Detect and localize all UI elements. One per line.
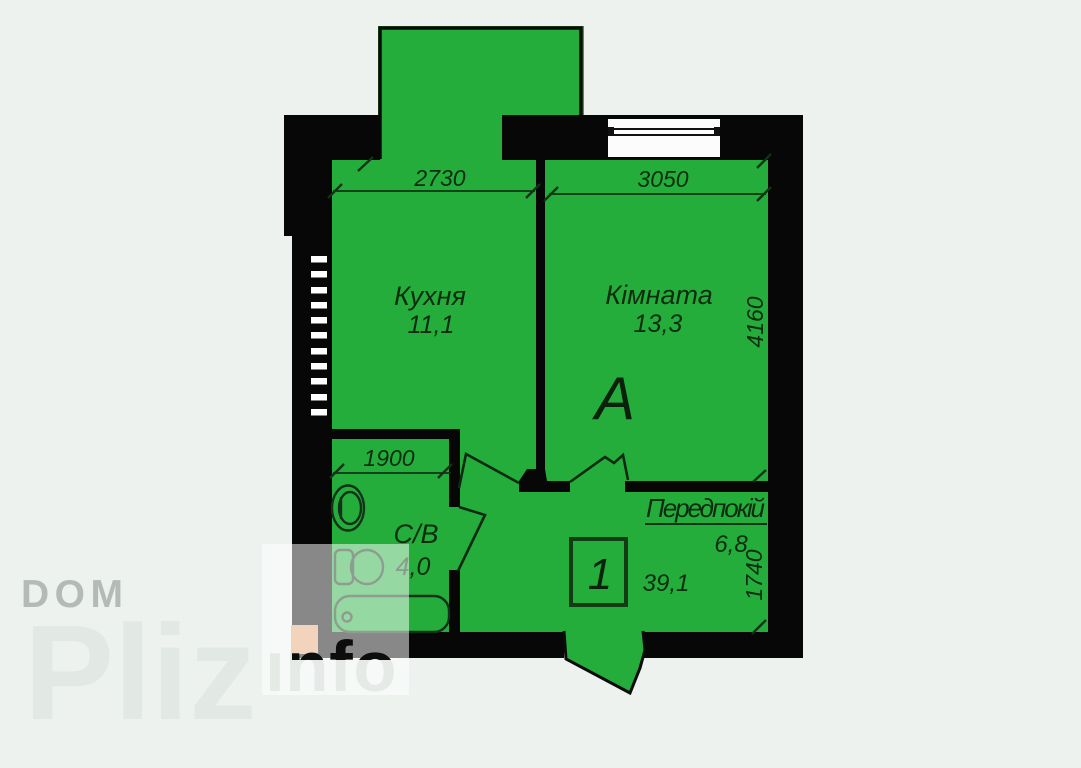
svg-text:39,1: 39,1 — [643, 570, 690, 597]
svg-text:Pliz: Pliz — [24, 597, 257, 748]
svg-text:DOM: DOM — [21, 573, 129, 616]
svg-text:3050: 3050 — [637, 166, 688, 192]
svg-text:2730: 2730 — [413, 165, 465, 191]
svg-text:А: А — [592, 365, 635, 432]
svg-text:Кімната: Кімната — [605, 280, 713, 310]
svg-text:6,8: 6,8 — [714, 531, 748, 558]
svg-text:11,1: 11,1 — [408, 311, 455, 339]
svg-text:Кухня: Кухня — [394, 281, 466, 311]
svg-text:4160: 4160 — [742, 296, 768, 347]
svg-text:Передпокій: Передпокій — [646, 493, 765, 523]
svg-text:13,3: 13,3 — [634, 310, 683, 338]
svg-text:1: 1 — [588, 550, 612, 599]
svg-text:1900: 1900 — [363, 445, 414, 471]
